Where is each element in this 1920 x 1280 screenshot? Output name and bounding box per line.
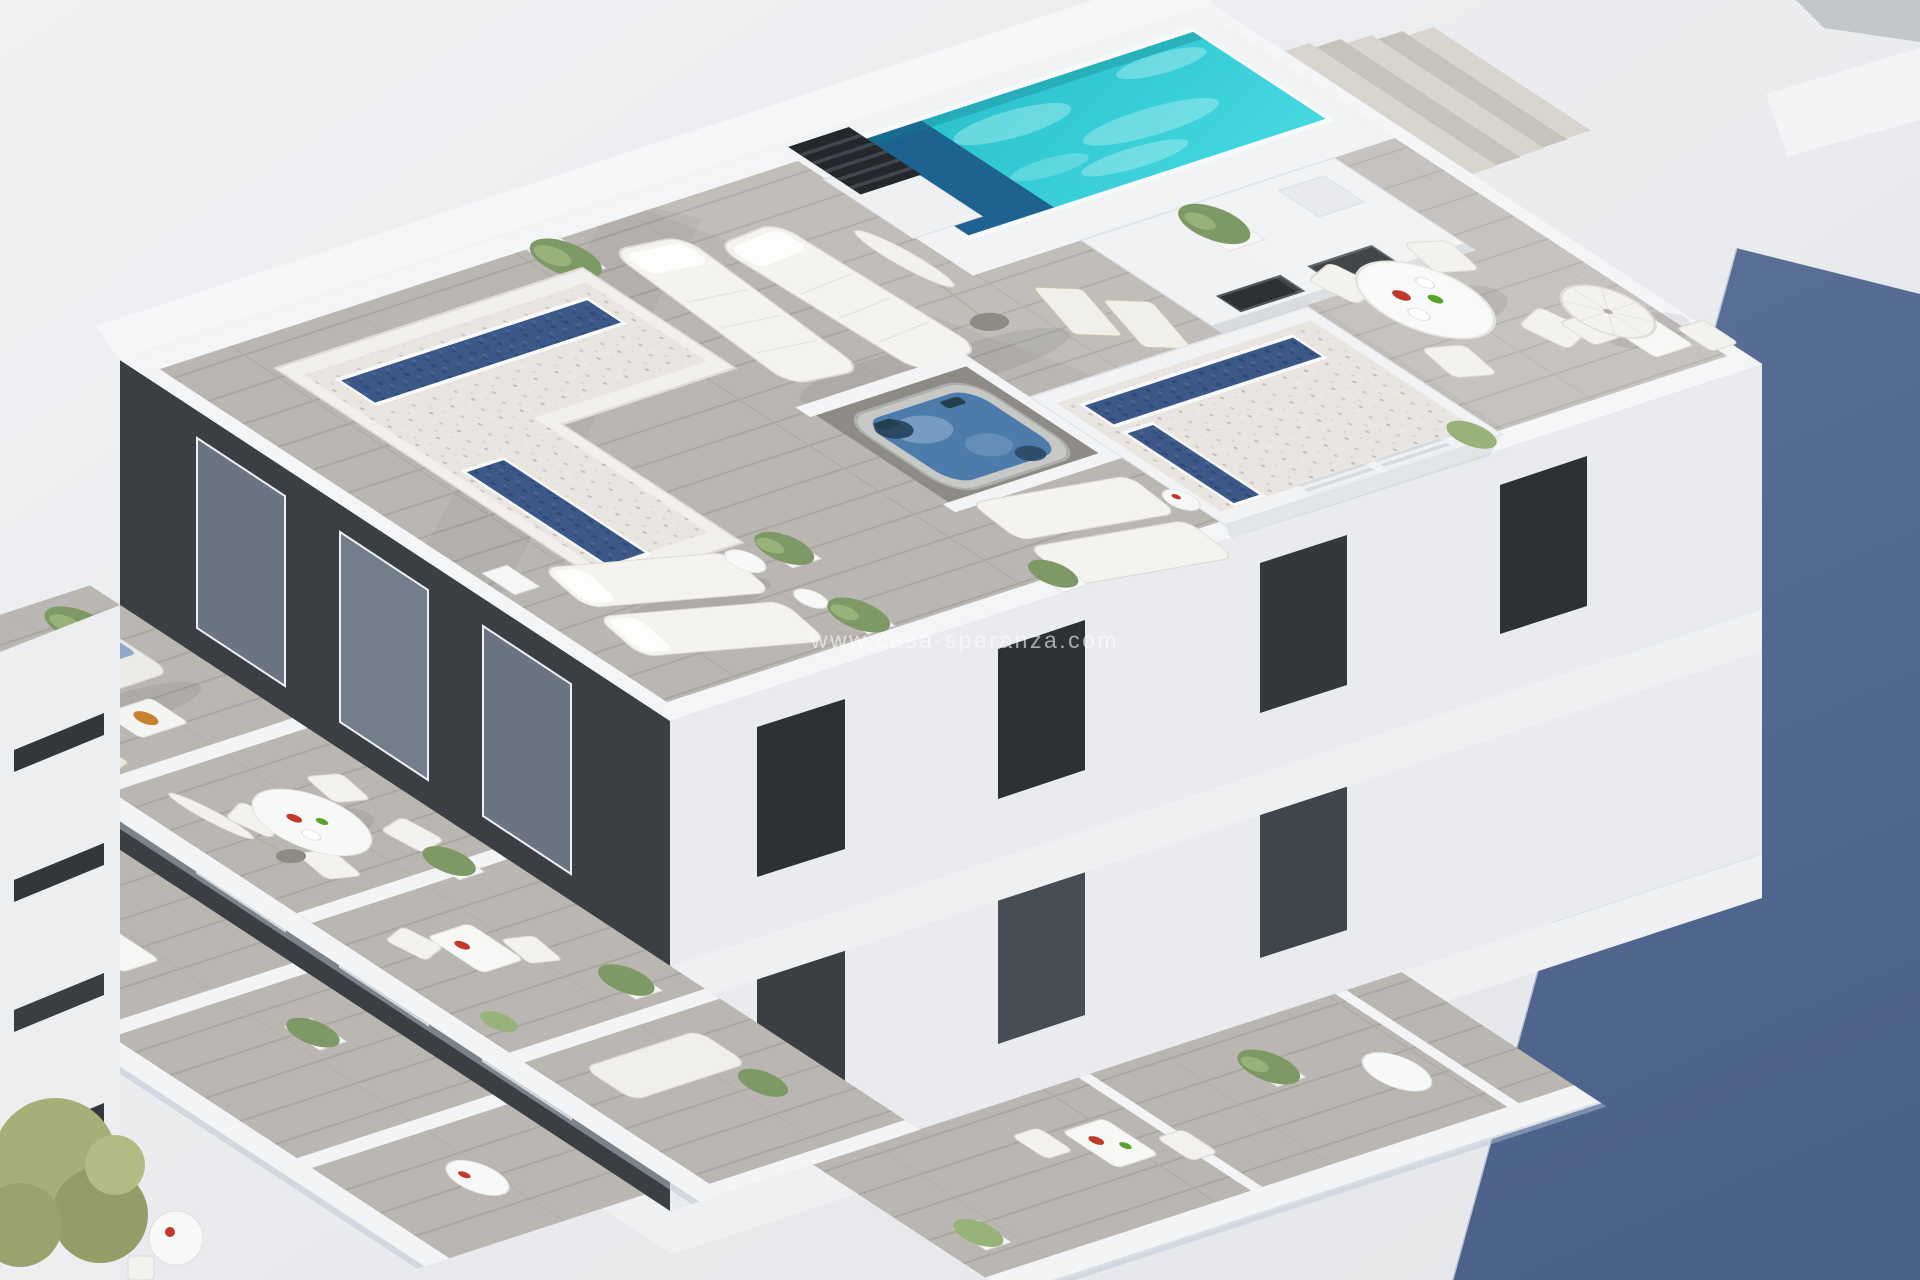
dark-doorway (1260, 535, 1347, 713)
small-round-table (149, 1211, 203, 1265)
render-image: www.casa-speranza.com (0, 0, 1920, 1280)
chair (128, 1256, 154, 1280)
tree (85, 1135, 145, 1195)
dark-doorway (1500, 456, 1587, 634)
dark-doorway (757, 699, 845, 877)
watermark-text: www.casa-speranza.com (810, 627, 1119, 653)
fruit (165, 1227, 175, 1237)
